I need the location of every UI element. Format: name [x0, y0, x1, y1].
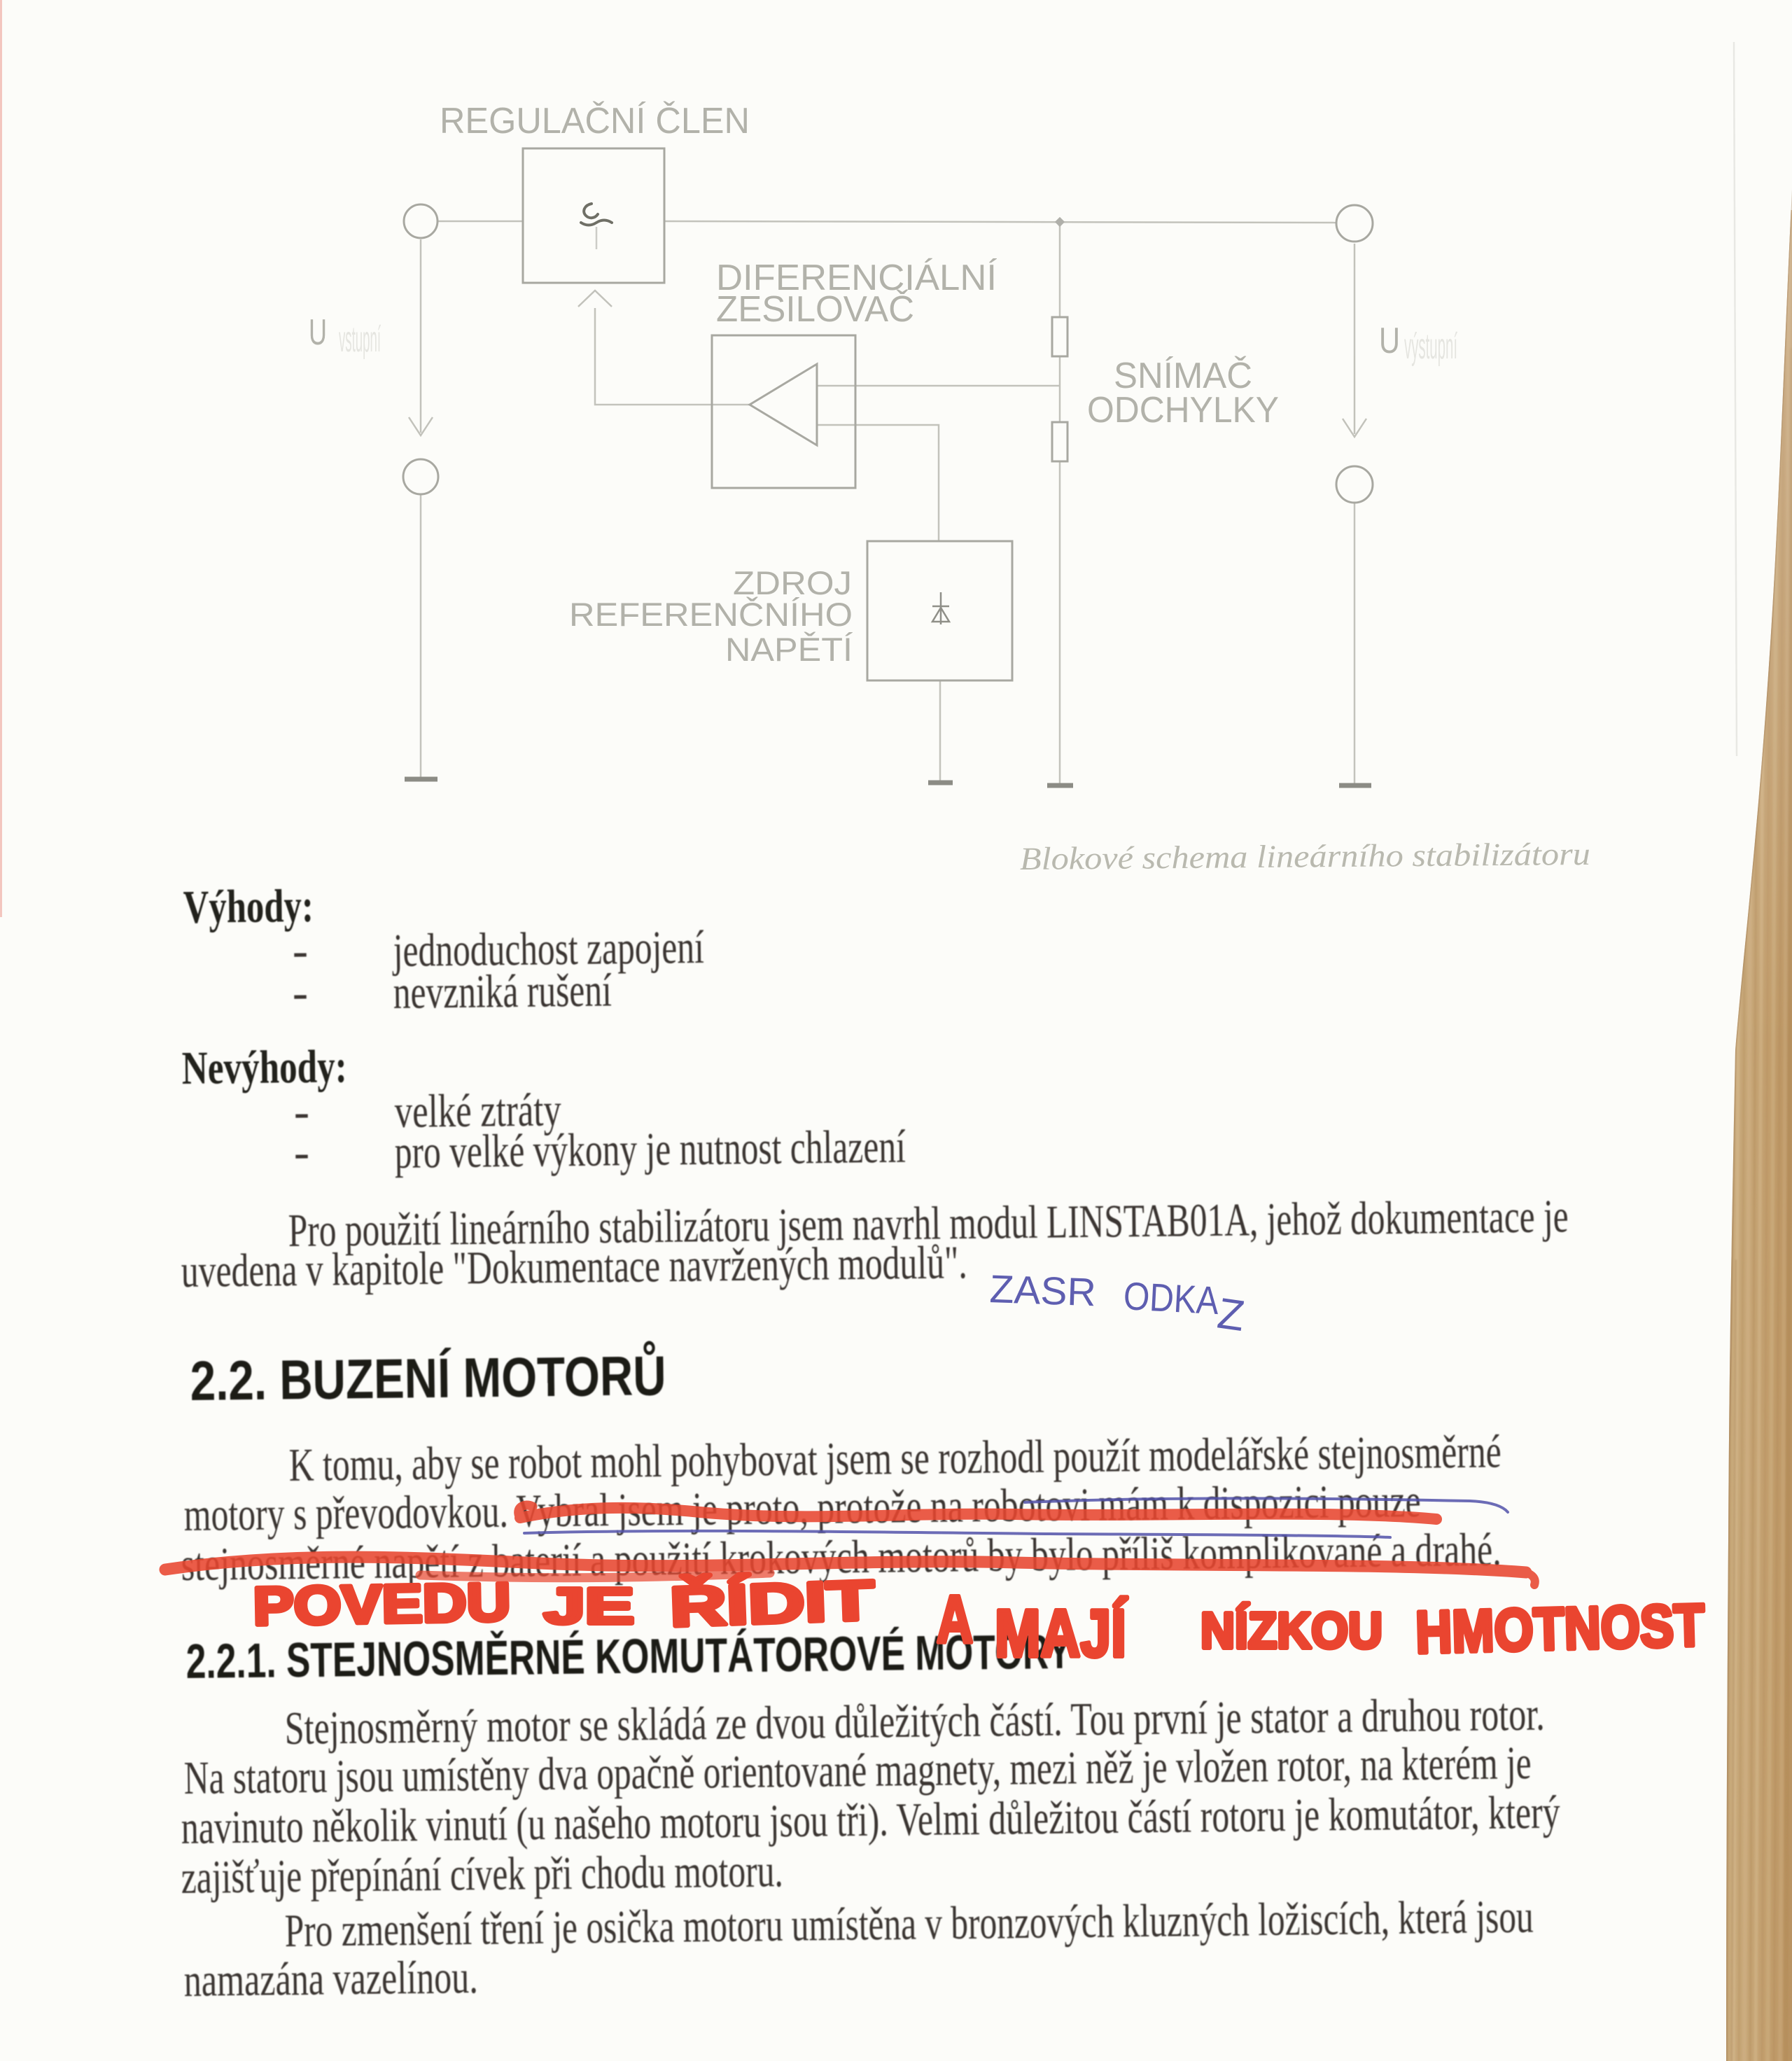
svg-text:zajišťuje přepínání cívek při: zajišťuje přepínání cívek při chodu moto… [181, 1845, 783, 1903]
svg-text:MAJÍ: MAJÍ [995, 1596, 1128, 1671]
svg-text:Blokové schema lineárního stab: Blokové schema lineárního stabilizátoru [1020, 836, 1590, 876]
svg-text:HMOTNOST: HMOTNOST [1415, 1592, 1705, 1666]
svg-text:NÍZKOU: NÍZKOU [1200, 1603, 1382, 1659]
svg-text:ŘÍDIT: ŘÍDIT [668, 1569, 875, 1638]
svg-text:vstupní: vstupní [339, 319, 381, 360]
svg-text:ZESILOVAČ: ZESILOVAČ [716, 289, 914, 330]
svg-text:pro velké výkony je nutnost ch: pro velké výkony je nutnost chlazení [394, 1121, 906, 1178]
svg-text:REGULAČNÍ ČLEN: REGULAČNÍ ČLEN [440, 101, 750, 141]
svg-text:U: U [309, 312, 327, 353]
svg-text:výstupní: výstupní [1404, 326, 1457, 367]
svg-text:Pro zmenšení tření je osička m: Pro zmenšení tření je osička motoru umís… [284, 1891, 1534, 1957]
svg-text:Nevýhody:: Nevýhody: [181, 1040, 347, 1094]
svg-text:REFERENČNÍHO: REFERENČNÍHO [569, 596, 853, 633]
svg-text:NAPĚTÍ: NAPĚTÍ [725, 631, 853, 668]
svg-text:ODKA: ODKA [1122, 1273, 1220, 1322]
svg-text:Z: Z [1214, 1290, 1247, 1341]
svg-text:U: U [1379, 321, 1400, 361]
svg-text:-: - [292, 967, 308, 1019]
svg-text:2.2. BUZENÍ MOTORŮ: 2.2. BUZENÍ MOTORŮ [190, 1341, 666, 1412]
svg-text:JE: JE [544, 1579, 634, 1635]
svg-text:namazána vazelínou.: namazána vazelínou. [183, 1951, 478, 2006]
svg-text:ZASR: ZASR [989, 1266, 1097, 1314]
svg-text:ODCHYLKY: ODCHYLKY [1087, 390, 1279, 431]
svg-text:nevzniká rušení: nevzniká rušení [393, 964, 612, 1019]
svg-text:uvedena v kapitole "Dokumentac: uvedena v kapitole "Dokumentace navržený… [181, 1236, 967, 1297]
svg-text:A: A [937, 1582, 973, 1657]
svg-text:POVEDU: POVEDU [253, 1572, 511, 1637]
svg-text:-: - [293, 1126, 309, 1178]
